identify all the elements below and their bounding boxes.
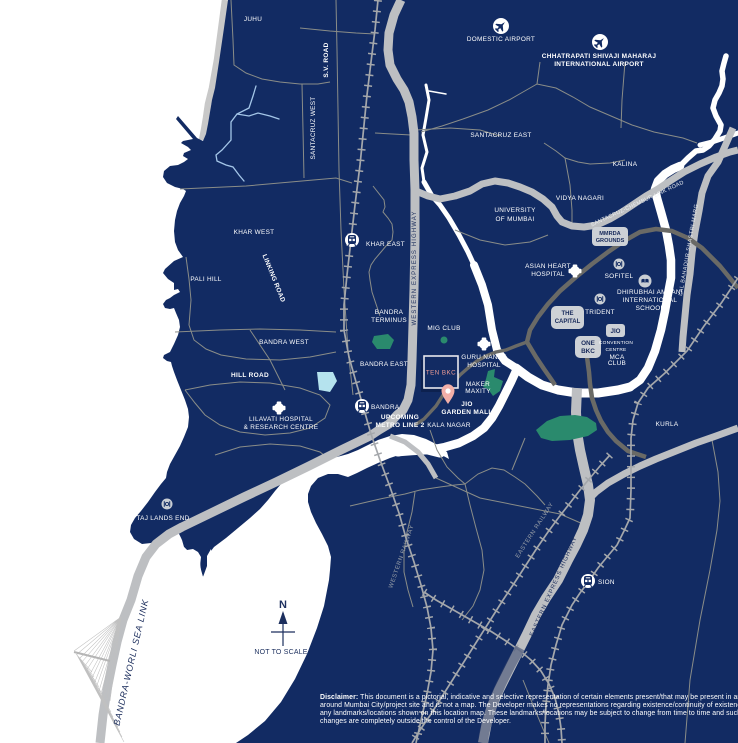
svg-text:JUHU: JUHU	[244, 16, 262, 23]
svg-text:any landmarks/locations shown: any landmarks/locations shown on this lo…	[320, 710, 738, 717]
svg-text:NOT TO SCALE: NOT TO SCALE	[254, 649, 307, 656]
svg-text:TERMINUS: TERMINUS	[371, 317, 407, 324]
svg-text:OF MUMBAI: OF MUMBAI	[496, 216, 535, 223]
svg-text:BKC: BKC	[581, 348, 595, 355]
svg-text:MIG CLUB: MIG CLUB	[427, 325, 460, 332]
svg-text:MAXITY: MAXITY	[465, 388, 491, 395]
svg-text:WESTERN EXPRESS HIGHWAY: WESTERN EXPRESS HIGHWAY	[412, 211, 418, 326]
svg-text:PALI HILL: PALI HILL	[190, 276, 221, 283]
svg-text:ASIAN HEART: ASIAN HEART	[525, 263, 571, 270]
svg-text:VIDYA NAGARI: VIDYA NAGARI	[556, 195, 604, 202]
svg-text:N: N	[279, 599, 287, 611]
svg-text:TAJ LANDS END: TAJ LANDS END	[136, 515, 189, 522]
svg-text:Disclaimer: This document is a: Disclaimer: This document is a pictorial…	[320, 694, 738, 701]
svg-text:THE: THE	[562, 311, 574, 317]
svg-text:GARDEN MALL: GARDEN MALL	[441, 409, 492, 416]
svg-text:KALINA: KALINA	[613, 161, 638, 168]
svg-text:S.V. ROAD: S.V. ROAD	[323, 42, 330, 77]
svg-text:HOSPITAL: HOSPITAL	[467, 362, 501, 369]
svg-text:UNIVERSITY: UNIVERSITY	[494, 207, 536, 214]
svg-text:KALA NAGAR: KALA NAGAR	[427, 422, 471, 429]
svg-text:CAPITAL: CAPITAL	[555, 319, 581, 325]
svg-text:CHHATRAPATI SHIVAJI MAHARAJ: CHHATRAPATI SHIVAJI MAHARAJ	[542, 53, 657, 60]
svg-text:BANDRA: BANDRA	[375, 309, 404, 316]
svg-text:INTERNATIONAL: INTERNATIONAL	[623, 297, 678, 304]
svg-text:SCHOOL: SCHOOL	[636, 305, 665, 312]
svg-text:MMRDA: MMRDA	[599, 231, 620, 237]
svg-text:GURU NANAK: GURU NANAK	[461, 354, 507, 361]
svg-text:CLUB: CLUB	[608, 360, 626, 367]
svg-text:SOFITEL: SOFITEL	[605, 273, 634, 280]
svg-text:INTERNATIONAL AIRPORT: INTERNATIONAL AIRPORT	[554, 61, 644, 68]
svg-text:& RESEARCH CENTRE: & RESEARCH CENTRE	[244, 424, 319, 431]
svg-text:JIO: JIO	[611, 328, 621, 335]
svg-text:CONVENTION: CONVENTION	[599, 340, 633, 346]
svg-text:CENTRE: CENTRE	[606, 347, 627, 353]
svg-text:DOMESTIC AIRPORT: DOMESTIC AIRPORT	[467, 36, 535, 43]
svg-text:HILL ROAD: HILL ROAD	[231, 372, 269, 379]
svg-text:BANDRA: BANDRA	[371, 404, 400, 411]
svg-text:DHIRUBHAI AMBANI: DHIRUBHAI AMBANI	[617, 289, 683, 296]
svg-text:SANTACRUZ WEST: SANTACRUZ WEST	[310, 96, 317, 159]
svg-text:MAKER: MAKER	[466, 381, 490, 388]
svg-text:HOSPITAL: HOSPITAL	[531, 271, 565, 278]
svg-text:BANDRA WEST: BANDRA WEST	[259, 339, 309, 346]
svg-text:TRIDENT: TRIDENT	[585, 309, 615, 316]
svg-text:UPCOMING: UPCOMING	[381, 414, 419, 421]
svg-text:METRO LINE 2: METRO LINE 2	[375, 422, 424, 429]
svg-text:JIO: JIO	[461, 401, 472, 408]
svg-text:KHAR WEST: KHAR WEST	[234, 229, 275, 236]
svg-text:KURLA: KURLA	[656, 421, 679, 428]
svg-text:around Mumbai City/project sit: around Mumbai City/project site and is n…	[320, 702, 738, 709]
svg-text:SION: SION	[598, 579, 615, 586]
svg-text:GROUNDS: GROUNDS	[596, 238, 625, 244]
svg-text:SANTACRUZ EAST: SANTACRUZ EAST	[470, 132, 531, 139]
svg-text:ONE: ONE	[581, 340, 596, 347]
svg-text:LILAVATI HOSPITAL: LILAVATI HOSPITAL	[249, 416, 313, 423]
svg-text:TEN BKC: TEN BKC	[426, 370, 456, 377]
svg-text:changes are completely outside: changes are completely outside the contr…	[320, 718, 511, 725]
svg-text:KHAR EAST: KHAR EAST	[366, 241, 405, 248]
svg-text:BANDRA EAST: BANDRA EAST	[360, 361, 408, 368]
